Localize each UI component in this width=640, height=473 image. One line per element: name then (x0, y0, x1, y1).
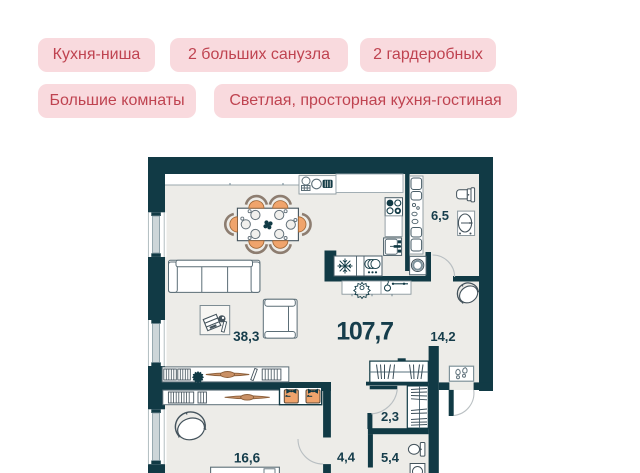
svg-text:16,6: 16,6 (234, 451, 261, 466)
svg-text:107,7: 107,7 (336, 318, 393, 346)
svg-text:2,3: 2,3 (381, 409, 399, 424)
svg-text:6,5: 6,5 (431, 208, 449, 223)
svg-text:14,2: 14,2 (430, 329, 455, 344)
svg-text:5,4: 5,4 (381, 450, 400, 465)
svg-text:4,4: 4,4 (337, 450, 356, 465)
svg-text:38,3: 38,3 (233, 329, 260, 344)
